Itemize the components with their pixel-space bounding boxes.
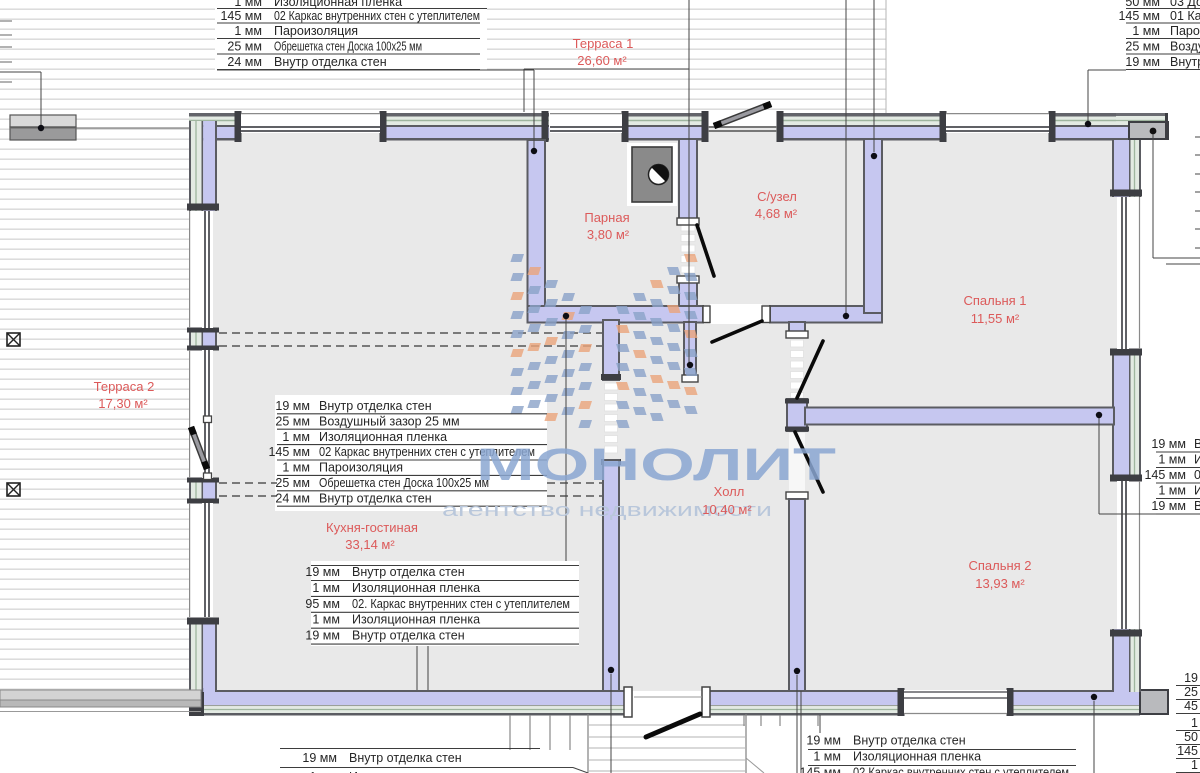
svg-text:1 мм: 1 мм [312, 613, 340, 627]
svg-text:1 мм: 1 мм [312, 581, 340, 595]
svg-text:45: 45 [1184, 699, 1198, 713]
svg-text:3,80 м²: 3,80 м² [587, 227, 630, 242]
svg-text:Обрешетка стен Доска 100x25 м: Обрешетка стен Доска 100x25 мм [274, 40, 422, 54]
svg-text:145 мм: 145 мм [799, 766, 841, 773]
svg-text:Пароиз: Пароиз [1170, 24, 1200, 38]
svg-text:145: 145 [1177, 744, 1198, 758]
svg-text:Внутр отделка стен: Внутр отделка стен [853, 734, 966, 748]
svg-text:Внутр отделка стен: Внутр отделка стен [274, 55, 387, 69]
svg-text:03 Доп: 03 Доп [1170, 0, 1200, 9]
svg-text:50: 50 [1184, 730, 1198, 744]
svg-text:Внутр отделка стен: Внутр отделка стен [319, 491, 432, 505]
svg-text:19 мм: 19 мм [305, 629, 340, 643]
svg-text:0: 0 [1194, 468, 1200, 482]
svg-text:33,14 м²: 33,14 м² [345, 537, 395, 552]
svg-text:145 мм: 145 мм [1118, 9, 1160, 23]
svg-text:10,40 м²: 10,40 м² [702, 502, 752, 517]
svg-text:95 мм: 95 мм [305, 597, 340, 611]
svg-text:Кухня-гостиная: Кухня-гостиная [326, 520, 418, 535]
svg-text:Внутр отделка стен: Внутр отделка стен [352, 565, 465, 579]
svg-text:24 мм: 24 мм [275, 491, 310, 505]
svg-text:Изоляционная пленка: Изоляционная пленка [853, 750, 981, 764]
svg-text:4,68 м²: 4,68 м² [755, 206, 798, 221]
svg-text:1 мм: 1 мм [282, 461, 310, 475]
svg-text:В: В [1194, 437, 1200, 451]
svg-text:Внутр отделка стен: Внутр отделка стен [319, 399, 432, 413]
svg-text:25 мм: 25 мм [275, 476, 310, 490]
svg-text:19: 19 [1184, 671, 1198, 685]
svg-text:Изоляционная пленка: Изоляционная пленка [352, 581, 480, 595]
svg-text:Изоляционная пленка: Изоляционная пленка [274, 0, 402, 9]
svg-text:Воздушный зазор 25 мм: Воздушный зазор 25 мм [319, 414, 460, 428]
svg-text:1 мм: 1 мм [234, 0, 262, 9]
svg-text:145 мм: 145 мм [268, 445, 310, 459]
svg-text:26,60 м²: 26,60 м² [577, 53, 627, 68]
svg-text:17,30 м²: 17,30 м² [98, 396, 148, 411]
svg-text:1 мм: 1 мм [1132, 24, 1160, 38]
svg-text:24 мм: 24 мм [227, 55, 262, 69]
svg-text:Возду: Возду [1170, 40, 1200, 54]
svg-text:В: В [1194, 499, 1200, 513]
svg-text:МОНОЛИТ: МОНОЛИТ [476, 439, 836, 490]
svg-text:И: И [1194, 484, 1200, 498]
svg-text:19 мм: 19 мм [1125, 55, 1160, 69]
svg-text:1: 1 [1191, 716, 1198, 730]
svg-text:19 мм: 19 мм [1151, 437, 1186, 451]
svg-text:25 мм: 25 мм [1125, 40, 1160, 54]
svg-text:1 мм: 1 мм [1158, 484, 1186, 498]
svg-text:50 мм: 50 мм [1125, 0, 1160, 9]
svg-text:19 мм: 19 мм [305, 565, 340, 579]
svg-text:С/узел: С/узел [757, 189, 797, 204]
svg-text:13,93 м²: 13,93 м² [975, 576, 1025, 591]
svg-text:02 Каркас внутренних стен с ут: 02 Каркас внутренних стен с утеплителем [853, 766, 1069, 773]
svg-text:19 мм: 19 мм [302, 751, 337, 765]
svg-text:Изоляционная пленка: Изоляционная пленка [352, 613, 480, 627]
svg-text:1 мм: 1 мм [1158, 453, 1186, 467]
svg-text:01 Кар: 01 Кар [1170, 9, 1200, 23]
svg-text:Спальня 2: Спальня 2 [968, 558, 1031, 573]
svg-text:02 Каркас внутренних стен с ут: 02 Каркас внутренних стен с утеплителем [274, 9, 480, 23]
svg-text:Парная: Парная [584, 210, 629, 225]
svg-text:19 мм: 19 мм [1151, 499, 1186, 513]
svg-text:1 мм: 1 мм [234, 24, 262, 38]
svg-text:25 мм: 25 мм [227, 40, 262, 54]
svg-text:1 мм: 1 мм [813, 750, 841, 764]
svg-text:Внутр: Внутр [1170, 55, 1200, 69]
svg-text:Терраса 1: Терраса 1 [573, 36, 634, 51]
svg-text:19 мм: 19 мм [275, 399, 310, 413]
svg-text:Холл: Холл [714, 484, 745, 499]
svg-text:25 мм: 25 мм [275, 414, 310, 428]
svg-text:Обрешетка стен Доска 100x25 м: Обрешетка стен Доска 100x25 мм [319, 476, 489, 490]
svg-text:Изоляционная пленка: Изоляционная пленка [319, 430, 447, 444]
svg-text:Терраса 2: Терраса 2 [94, 379, 155, 394]
svg-text:25: 25 [1184, 685, 1198, 699]
svg-text:Внутр отделка стен: Внутр отделка стен [352, 629, 465, 643]
svg-text:11,55 м²: 11,55 м² [971, 311, 1020, 326]
svg-text:Пароизоляция: Пароизоляция [274, 24, 358, 38]
svg-text:И: И [1194, 453, 1200, 467]
svg-text:19 мм: 19 мм [806, 734, 841, 748]
svg-text:145 мм: 145 мм [220, 9, 262, 23]
svg-text:Спальня 1: Спальня 1 [963, 293, 1026, 308]
svg-text:1 мм: 1 мм [282, 430, 310, 444]
svg-text:Пароизоляция: Пароизоляция [319, 461, 403, 475]
svg-text:02. Каркас внутренних стен с у: 02. Каркас внутренних стен с утеплителем [352, 597, 570, 611]
svg-text:145 мм: 145 мм [1144, 468, 1186, 482]
svg-text:Внутр отделка стен: Внутр отделка стен [349, 751, 462, 765]
svg-text:1: 1 [1191, 758, 1198, 772]
